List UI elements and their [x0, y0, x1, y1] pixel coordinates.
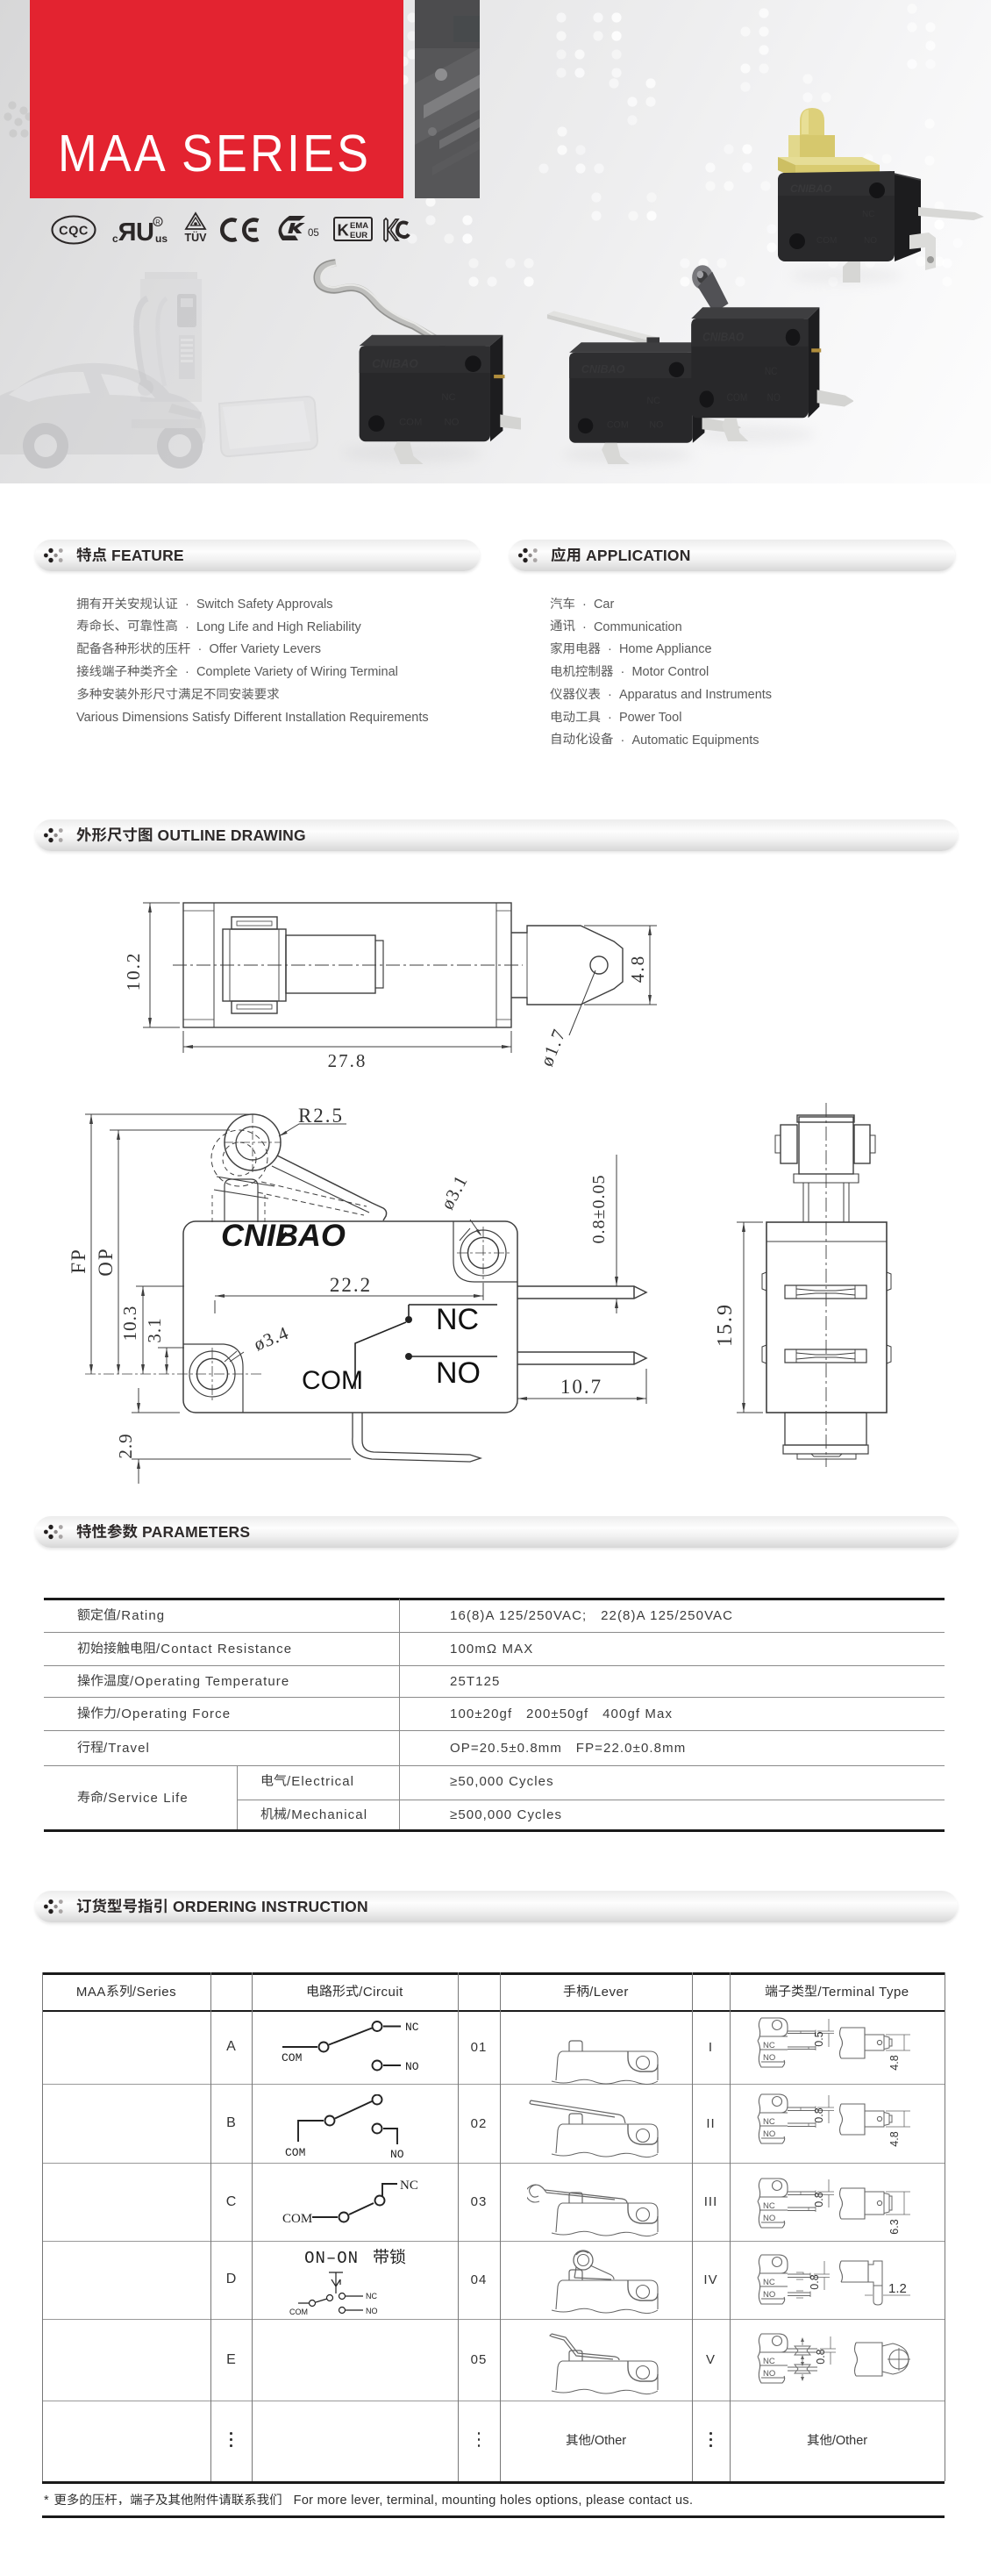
svg-text:NO: NO: [763, 2214, 775, 2223]
svg-text:2.9: 2.9: [115, 1433, 136, 1458]
svg-text:R: R: [155, 218, 160, 226]
svg-text:COM: COM: [289, 2308, 308, 2316]
svg-text:NC: NC: [405, 2021, 419, 2034]
svg-text:15.9: 15.9: [714, 1303, 737, 1347]
svg-text:NO: NO: [767, 392, 781, 404]
svg-text:U: U: [136, 218, 154, 247]
svg-text:COM: COM: [607, 419, 629, 430]
svg-text:0.8: 0.8: [815, 2349, 827, 2364]
svg-text:TÜV: TÜV: [185, 231, 208, 244]
svg-text:NO: NO: [405, 2060, 419, 2073]
svg-text:NC: NC: [436, 1303, 479, 1336]
svg-text:OP: OP: [95, 1247, 117, 1276]
svg-text:NC: NC: [763, 2201, 775, 2211]
svg-text:NO: NO: [864, 236, 877, 246]
svg-text:COM: COM: [282, 2212, 312, 2226]
svg-text:NC: NC: [765, 367, 778, 378]
svg-text:COM: COM: [285, 2146, 305, 2159]
svg-text:R: R: [118, 218, 137, 247]
svg-text:NO: NO: [366, 2307, 378, 2315]
svg-text:0.8: 0.8: [813, 2192, 825, 2207]
svg-text:0.8: 0.8: [809, 2274, 821, 2289]
svg-text:COM: COM: [282, 2051, 302, 2064]
svg-text:10.3: 10.3: [119, 1306, 140, 1342]
svg-text:NC: NC: [441, 392, 455, 403]
svg-text:NC: NC: [763, 2357, 775, 2366]
svg-text:NC: NC: [646, 396, 660, 406]
svg-text:NO: NO: [390, 2148, 404, 2161]
svg-text:10.7: 10.7: [560, 1376, 602, 1398]
svg-text:NC: NC: [862, 210, 874, 219]
svg-text:c: c: [112, 233, 118, 245]
svg-text:22.2: 22.2: [330, 1274, 372, 1296]
svg-text:05: 05: [308, 228, 319, 239]
svg-text:R2.5: R2.5: [298, 1105, 344, 1127]
svg-text:NC: NC: [400, 2179, 418, 2193]
svg-text:NO: NO: [444, 418, 459, 428]
svg-text:COM: COM: [727, 392, 748, 404]
svg-text:0.5: 0.5: [813, 2031, 825, 2046]
svg-text:NO: NO: [763, 2129, 775, 2139]
svg-text:3.1: 3.1: [144, 1317, 165, 1342]
svg-text:NC: NC: [763, 2041, 775, 2050]
svg-text:NO: NO: [763, 2290, 775, 2300]
svg-text:CNIBAO: CNIBAO: [702, 330, 744, 344]
svg-text:FP: FP: [68, 1248, 89, 1274]
svg-text:0.8: 0.8: [813, 2107, 825, 2122]
svg-text:CNIBAO: CNIBAO: [581, 363, 625, 376]
svg-text:EMA: EMA: [350, 221, 368, 231]
svg-text:4.8: 4.8: [888, 2131, 901, 2146]
svg-text:ø3.4: ø3.4: [251, 1322, 292, 1356]
svg-text:NC: NC: [763, 2278, 775, 2287]
svg-text:NC: NC: [763, 2117, 775, 2127]
svg-text:0.8±0.05: 0.8±0.05: [589, 1175, 609, 1244]
svg-text:COM: COM: [399, 418, 422, 428]
svg-text:27.8: 27.8: [328, 1050, 367, 1071]
svg-text:6.3: 6.3: [888, 2219, 901, 2234]
svg-text:1.2: 1.2: [888, 2281, 907, 2296]
svg-text:NO: NO: [436, 1356, 481, 1390]
svg-text:NO: NO: [763, 2369, 775, 2379]
svg-text:CNIBAO: CNIBAO: [790, 182, 832, 195]
svg-text:4.8: 4.8: [627, 955, 648, 983]
svg-text:10.2: 10.2: [123, 952, 144, 991]
svg-text:NO: NO: [649, 419, 663, 430]
svg-text:ø1.7: ø1.7: [536, 1025, 570, 1069]
svg-text:CQC: CQC: [59, 225, 89, 239]
svg-text:NO: NO: [763, 2053, 775, 2063]
svg-text:4.8: 4.8: [888, 2055, 901, 2070]
svg-text:COM: COM: [302, 1366, 363, 1395]
svg-text:CNIBAO: CNIBAO: [372, 357, 418, 370]
svg-text:ø3.1: ø3.1: [437, 1171, 472, 1213]
svg-text:EUR: EUR: [350, 231, 367, 240]
svg-text:us: us: [155, 233, 168, 245]
svg-text:NC: NC: [366, 2292, 377, 2301]
svg-text:K: K: [338, 221, 350, 240]
